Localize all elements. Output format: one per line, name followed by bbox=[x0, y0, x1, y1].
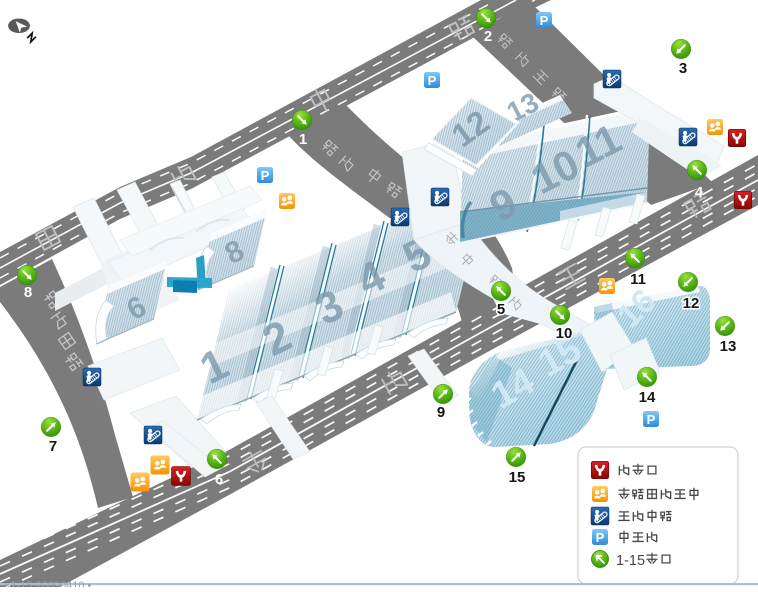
svg-text:14: 14 bbox=[639, 389, 656, 406]
svg-text:P: P bbox=[261, 168, 270, 183]
svg-text:3: 3 bbox=[679, 60, 687, 77]
svg-text:5: 5 bbox=[497, 301, 505, 318]
svg-text:P: P bbox=[428, 73, 437, 88]
svg-text:2: 2 bbox=[484, 28, 492, 45]
svg-text:4: 4 bbox=[695, 184, 704, 201]
svg-text:10: 10 bbox=[556, 325, 573, 342]
svg-text:P: P bbox=[647, 412, 656, 427]
svg-text:×1-15 20090410 •: ×1-15 20090410 • bbox=[4, 580, 91, 587]
svg-text:P: P bbox=[596, 530, 605, 545]
svg-text:7: 7 bbox=[49, 438, 57, 455]
svg-text:11: 11 bbox=[630, 271, 646, 288]
svg-text:1: 1 bbox=[299, 131, 307, 148]
svg-text:6: 6 bbox=[215, 471, 223, 488]
svg-text:9: 9 bbox=[437, 404, 445, 421]
svg-text:8: 8 bbox=[24, 284, 32, 301]
svg-text:1-15: 1-15 bbox=[616, 553, 645, 569]
svg-text:P: P bbox=[540, 13, 549, 28]
svg-text:13: 13 bbox=[720, 338, 737, 355]
svg-text:15: 15 bbox=[509, 469, 526, 486]
svg-text:12: 12 bbox=[683, 295, 700, 312]
